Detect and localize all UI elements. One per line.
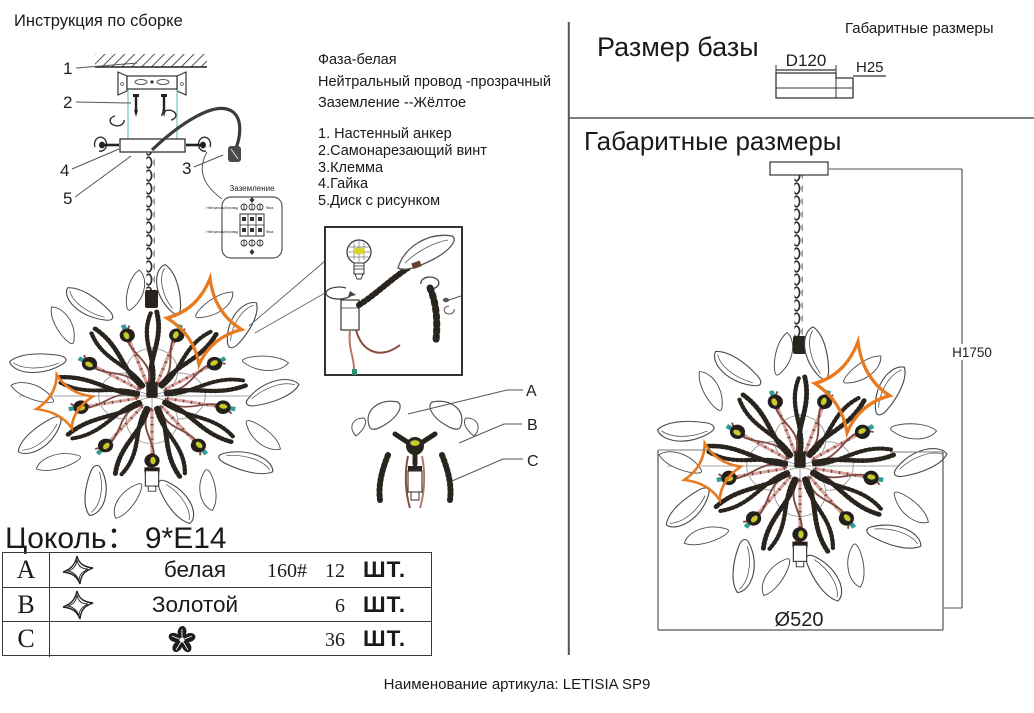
flower-icon [167, 625, 197, 660]
table-row: C [3, 621, 431, 656]
callout-1: 1 [63, 59, 72, 78]
detail-inset-box [325, 227, 462, 375]
twisted-star-icon [61, 590, 95, 625]
part-unit: ШТ. [363, 626, 406, 652]
power-cable [152, 108, 241, 162]
base-size-title: Размер базы [597, 32, 759, 63]
wiring-ground: Заземление --Жёлтое [318, 93, 551, 115]
wiring-phase: Фаза-белая [318, 50, 551, 72]
wiring-notes: Фаза-белая Нейтральный провод -прозрачны… [318, 50, 551, 115]
height-dim-label: H1750 [952, 345, 992, 360]
part-color: белая [115, 557, 275, 583]
table-row: B Золотой 6 ШТ. [3, 587, 431, 622]
part-size: 160# [267, 560, 307, 583]
part-color: Золотой [115, 592, 275, 618]
base-size-drawing: D120 H25 [776, 51, 886, 98]
label-a: A [526, 383, 537, 400]
row-letter: C [3, 622, 50, 656]
ceiling-plate [770, 162, 828, 175]
parts-item: 4.Гайка [318, 176, 487, 193]
twisted-star-icon [61, 555, 95, 590]
wiring-neutral: Нейтральный провод -прозрачный [318, 72, 551, 94]
grounding-diagram: Заземление Нейтральный провод Нейтральн [202, 152, 282, 258]
dimensions-panel: D120 H25 H1750 [568, 18, 1034, 663]
callout-5: 5 [63, 189, 72, 208]
corner-title: Габаритные размеры [845, 20, 994, 37]
grounding-title: Заземление [229, 184, 275, 193]
row-letter: B [3, 588, 50, 622]
phase-label: Фаза [266, 206, 274, 210]
table-row: A белая 160# 12 ШТ. [3, 553, 431, 587]
socket-spec: Цоколь： 9*E14 [5, 513, 227, 557]
arm-assembly-abc [352, 401, 478, 508]
parts-item: 1. Настенный анкер [318, 126, 487, 143]
label-c: C [527, 453, 539, 470]
neutral-wire-label: Нейтральный провод [206, 230, 238, 234]
part-qty: 6 [303, 595, 345, 618]
page-title: Инструкция по сборке [14, 12, 183, 31]
chandelier-ball [653, 326, 947, 601]
part-qty: 36 [303, 629, 345, 652]
part-qty: 12 [303, 560, 345, 583]
article-name: Наименование артикула: LETISIA SP9 [0, 676, 1034, 693]
parts-item: 3.Клемма [318, 160, 487, 177]
row-letter: A [3, 553, 50, 587]
instruction-sheet: 1 2 3 4 5 Заземление [0, 0, 1034, 713]
callout-3: 3 [182, 159, 191, 178]
callout-2: 2 [63, 93, 72, 112]
suspension-chain [793, 175, 806, 354]
diameter-dim-label: Ø520 [775, 609, 824, 631]
label-b: B [527, 417, 538, 434]
suspension-chain [145, 152, 158, 308]
part-unit: ШТ. [363, 557, 406, 583]
overall-size-title: Габаритные размеры [584, 126, 842, 157]
base-height-dim: H25 [856, 59, 884, 76]
lamp-parts-table: A белая 160# 12 ШТ. B Золотой 6 [2, 552, 432, 656]
neutral-wire-label: Нейтральный провод [206, 206, 238, 210]
phase-label: Фаза [266, 230, 274, 234]
parts-list: 1. Настенный анкер 2.Самонарезающий винт… [318, 126, 487, 210]
parts-item: 5.Диск с рисунком [318, 193, 487, 210]
base-diameter-dim: D120 [786, 51, 827, 70]
part-unit: ШТ. [363, 592, 406, 618]
parts-item: 2.Самонарезающий винт [318, 143, 487, 160]
callout-4: 4 [60, 161, 69, 180]
detail-leader-lines [249, 261, 325, 333]
